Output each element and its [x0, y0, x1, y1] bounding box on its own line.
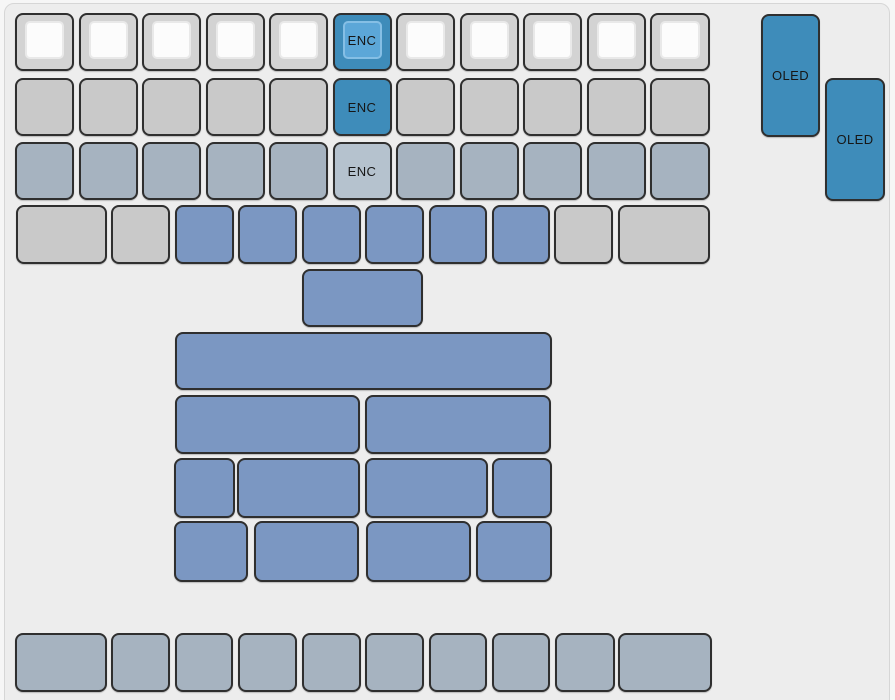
key[interactable] [492, 458, 552, 518]
key[interactable] [206, 142, 265, 200]
encoder-key[interactable]: ENC [333, 142, 392, 200]
keycap-top [279, 21, 318, 59]
key[interactable] [15, 633, 107, 692]
key[interactable] [476, 521, 552, 582]
key[interactable] [365, 205, 424, 264]
key[interactable] [175, 633, 233, 692]
key[interactable] [523, 78, 582, 136]
key[interactable] [366, 521, 471, 582]
key[interactable] [142, 13, 201, 71]
keycap-top [533, 21, 572, 59]
keycap-top [597, 21, 636, 59]
key[interactable] [523, 13, 582, 71]
key[interactable] [174, 521, 248, 582]
key[interactable] [365, 395, 551, 454]
key[interactable] [492, 633, 551, 692]
keycap-top [406, 21, 445, 59]
key[interactable] [587, 78, 646, 136]
key[interactable] [15, 78, 74, 136]
key[interactable] [396, 78, 455, 136]
key[interactable] [16, 205, 107, 264]
key[interactable] [492, 205, 550, 264]
key[interactable] [429, 633, 487, 692]
key-label: OLED [836, 132, 873, 147]
key-label: ENC [348, 100, 377, 115]
key[interactable] [79, 78, 138, 136]
key-label: OLED [772, 68, 809, 83]
key[interactable] [15, 142, 74, 200]
key[interactable] [587, 13, 646, 71]
key[interactable] [650, 13, 710, 71]
key[interactable] [365, 633, 424, 692]
key[interactable] [206, 78, 265, 136]
keycap-top [470, 21, 509, 59]
key[interactable] [269, 142, 328, 200]
key[interactable] [523, 142, 582, 200]
key[interactable] [650, 142, 710, 200]
key[interactable] [650, 78, 710, 136]
encoder-key[interactable]: ENC [333, 13, 392, 71]
key[interactable] [396, 13, 455, 71]
key[interactable] [175, 395, 361, 454]
key[interactable] [142, 78, 201, 136]
oled-key[interactable]: OLED [761, 14, 820, 137]
encoder-key[interactable]: ENC [333, 78, 392, 136]
key[interactable] [269, 78, 328, 136]
key[interactable] [460, 78, 519, 136]
key[interactable] [460, 13, 519, 71]
key[interactable] [554, 205, 613, 264]
key[interactable] [618, 205, 710, 264]
key[interactable] [175, 332, 552, 390]
key[interactable] [254, 521, 359, 582]
keycap-top [660, 21, 700, 59]
key[interactable] [238, 205, 297, 264]
key[interactable] [460, 142, 519, 200]
keycap-top [25, 21, 64, 59]
keycap-top [152, 21, 191, 59]
keycap-top: ENC [343, 21, 382, 59]
key[interactable] [15, 13, 74, 71]
key[interactable] [142, 142, 201, 200]
key[interactable] [79, 13, 138, 71]
key[interactable] [302, 205, 361, 264]
key[interactable] [79, 142, 138, 200]
oled-key[interactable]: OLED [825, 78, 885, 201]
key[interactable] [429, 205, 487, 264]
key[interactable] [111, 205, 170, 264]
key[interactable] [555, 633, 616, 692]
key[interactable] [302, 633, 361, 692]
key[interactable] [269, 13, 328, 71]
key[interactable] [365, 458, 488, 518]
keycap-top [89, 21, 128, 59]
key[interactable] [206, 13, 265, 71]
key[interactable] [237, 458, 360, 518]
key[interactable] [587, 142, 646, 200]
key[interactable] [618, 633, 712, 692]
key[interactable] [238, 633, 297, 692]
key[interactable] [302, 269, 423, 327]
app-background: ENCENCENCOLEDOLED [0, 0, 895, 700]
keycap-top [216, 21, 255, 59]
key-label: ENC [348, 164, 377, 179]
key[interactable] [111, 633, 170, 692]
key[interactable] [175, 205, 234, 264]
key[interactable] [396, 142, 455, 200]
key[interactable] [174, 458, 235, 518]
key-label: ENC [348, 33, 377, 48]
